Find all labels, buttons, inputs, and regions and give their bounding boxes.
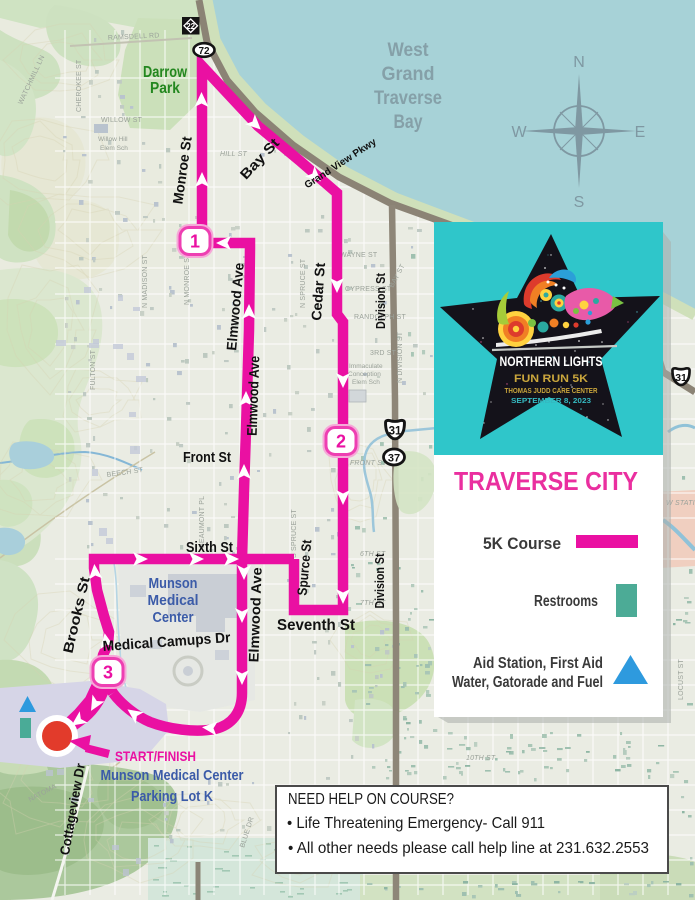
svg-text:3RD ST: 3RD ST — [370, 350, 397, 357]
svg-text:N: N — [573, 54, 585, 71]
svg-text:S SPRUCE ST: S SPRUCE ST — [291, 509, 298, 558]
svg-text:Willow Hill: Willow Hill — [98, 136, 128, 143]
svg-text:5K Course: 5K Course — [483, 534, 561, 553]
svg-text:Medical: Medical — [148, 593, 199, 609]
svg-text:N DIVISION ST: N DIVISION ST — [397, 331, 404, 383]
svg-text:W: W — [511, 124, 527, 141]
svg-text:1: 1 — [190, 232, 200, 252]
svg-text:Division St: Division St — [372, 553, 387, 609]
svg-text:THOMAS JUDD CARE CENTER: THOMAS JUDD CARE CENTER — [505, 388, 598, 395]
svg-text:Traverse: Traverse — [374, 87, 442, 109]
svg-text:Center: Center — [153, 610, 194, 626]
svg-text:Front St: Front St — [183, 449, 231, 466]
svg-text:• Life Threatening Emergency-: • Life Threatening Emergency- Call 911 — [287, 815, 545, 832]
svg-text:NEED HELP ON COURSE?: NEED HELP ON COURSE? — [288, 791, 454, 808]
svg-text:Munson Medical Center: Munson Medical Center — [101, 767, 244, 784]
svg-text:Division St: Division St — [373, 272, 388, 329]
svg-text:N MADISON ST: N MADISON ST — [142, 255, 149, 308]
svg-text:Elem Sch: Elem Sch — [100, 145, 128, 152]
svg-text:E: E — [635, 124, 646, 141]
svg-text:FULTON ST: FULTON ST — [90, 349, 97, 390]
svg-text:Sixth St: Sixth St — [186, 539, 233, 556]
svg-text:SEPTEMBER 8, 2023: SEPTEMBER 8, 2023 — [511, 396, 591, 405]
svg-text:N MONROE ST: N MONROE ST — [184, 253, 191, 305]
svg-text:START/FINISH: START/FINISH — [115, 748, 196, 764]
svg-text:Aid Station, First Aid: Aid Station, First Aid — [473, 655, 603, 672]
svg-text:Restrooms: Restrooms — [534, 593, 598, 610]
svg-text:Conception: Conception — [348, 371, 381, 378]
svg-text:31: 31 — [389, 425, 402, 437]
svg-text:LOCUST ST: LOCUST ST — [678, 659, 685, 700]
svg-text:22: 22 — [186, 22, 195, 31]
svg-text:10TH ST: 10TH ST — [466, 755, 496, 762]
svg-text:37: 37 — [388, 453, 400, 465]
svg-text:3: 3 — [103, 663, 113, 683]
svg-text:N SPRUCE ST: N SPRUCE ST — [300, 258, 307, 308]
svg-text:Seventh St: Seventh St — [277, 617, 356, 634]
svg-text:Park: Park — [150, 80, 180, 97]
svg-text:Parking Lot K: Parking Lot K — [131, 788, 213, 805]
svg-text:FUN RUN 5K: FUN RUN 5K — [514, 373, 588, 385]
svg-text:Elmwood Ave: Elmwood Ave — [245, 567, 264, 663]
svg-text:Water, Gatorade and Fuel: Water, Gatorade and Fuel — [452, 674, 603, 691]
svg-text:WILLOW ST: WILLOW ST — [101, 117, 143, 124]
svg-text:Elmwood Ave: Elmwood Ave — [244, 355, 263, 436]
svg-text:2: 2 — [336, 432, 346, 452]
svg-text:S: S — [574, 194, 585, 211]
svg-text:HILL ST: HILL ST — [220, 151, 247, 158]
svg-text:31: 31 — [675, 373, 687, 384]
svg-text:Elem Sch: Elem Sch — [352, 379, 380, 386]
svg-text:TRAVERSE CITY: TRAVERSE CITY — [454, 466, 638, 496]
svg-text:72: 72 — [198, 46, 210, 57]
svg-text:• All other needs please call: • All other needs please call help line … — [288, 840, 649, 857]
svg-text:West: West — [388, 39, 429, 61]
svg-text:Bay: Bay — [394, 111, 423, 133]
svg-text:Immaculate: Immaculate — [349, 363, 383, 370]
svg-text:NORTHERN LIGHTS: NORTHERN LIGHTS — [500, 354, 603, 369]
svg-text:CHEROKEE ST: CHEROKEE ST — [76, 59, 83, 112]
svg-text:Munson: Munson — [149, 576, 198, 592]
svg-text:Darrow: Darrow — [143, 64, 187, 81]
svg-text:Grand: Grand — [382, 63, 435, 85]
svg-text:WAYNE ST: WAYNE ST — [340, 252, 378, 259]
